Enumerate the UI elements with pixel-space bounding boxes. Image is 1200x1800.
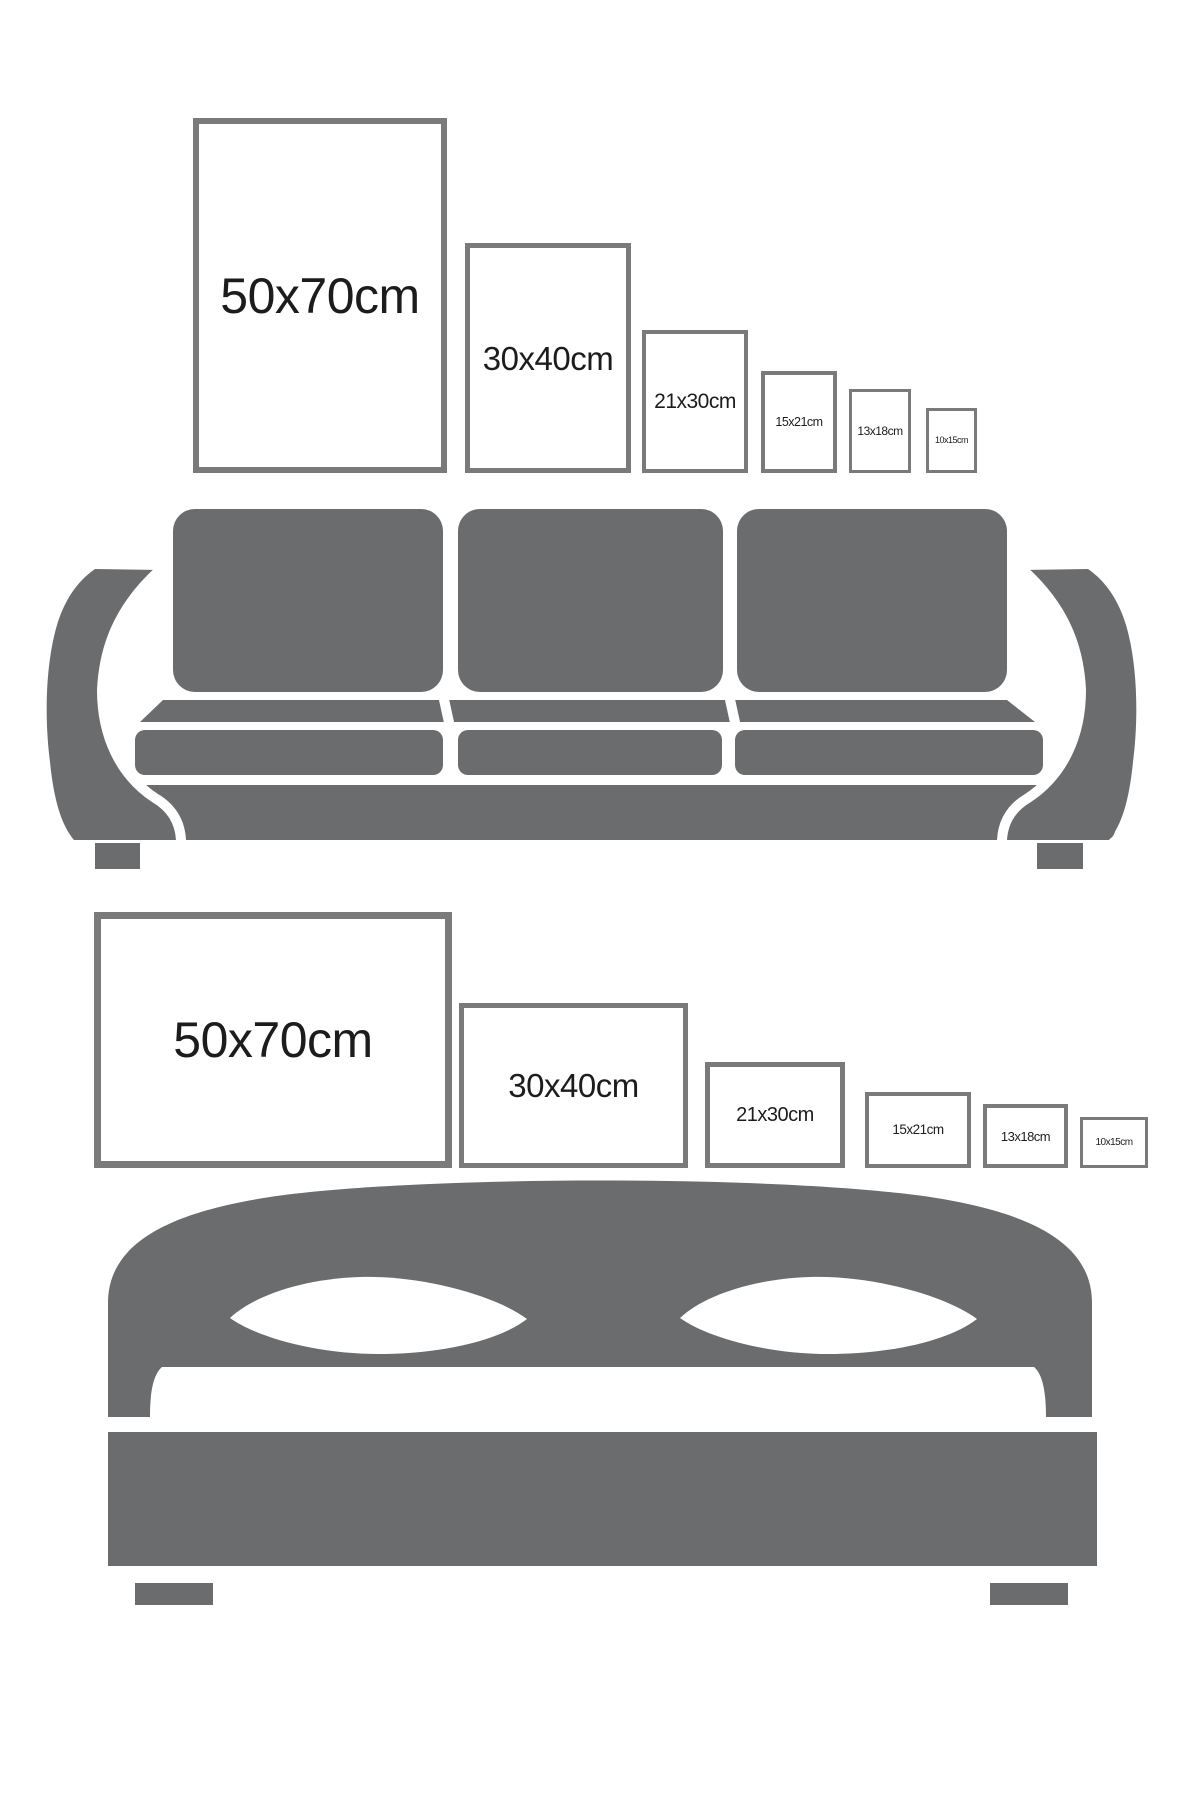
sofa-back-cushion-2 <box>458 509 723 692</box>
frame-size-label: 30x40cm <box>508 1069 638 1102</box>
sofa-seat-cushion-2 <box>458 730 722 775</box>
sofa-illustration <box>0 490 1200 880</box>
frame-portrait-10x15: 10x15cm <box>926 408 977 473</box>
sofa-seat-cushion-1 <box>135 730 443 775</box>
sofa-base <box>85 785 1115 840</box>
frame-size-label: 30x40cm <box>483 342 613 375</box>
frame-size-label: 15x21cm <box>775 416 822 429</box>
bed-foot-left <box>135 1583 213 1605</box>
sofa-foot-left <box>95 843 140 869</box>
frame-size-label: 21x30cm <box>654 391 736 412</box>
bed-illustration <box>0 1175 1200 1625</box>
sofa-seat-cushion-3 <box>735 730 1043 775</box>
frame-landscape-13x18: 13x18cm <box>983 1104 1068 1168</box>
frame-size-label: 10x15cm <box>1095 1138 1132 1148</box>
frame-size-label: 15x21cm <box>892 1123 943 1137</box>
frame-landscape-30x40: 30x40cm <box>459 1003 688 1168</box>
frame-size-label: 50x70cm <box>220 271 419 321</box>
size-guide-canvas: 50x70cm30x40cm21x30cm15x21cm13x18cm10x15… <box>0 0 1200 1800</box>
frame-size-label: 13x18cm <box>857 425 902 437</box>
frame-size-label: 10x15cm <box>935 436 968 445</box>
bed-base <box>108 1432 1097 1566</box>
bed-headboard <box>108 1181 1092 1418</box>
frame-landscape-50x70: 50x70cm <box>94 912 452 1168</box>
sofa-seat-deck <box>140 700 1035 722</box>
frame-portrait-50x70: 50x70cm <box>193 118 447 473</box>
sofa-back-cushion-1 <box>173 509 443 692</box>
frame-portrait-21x30: 21x30cm <box>642 330 748 473</box>
frame-portrait-13x18: 13x18cm <box>849 389 911 473</box>
bed-foot-right <box>990 1583 1068 1605</box>
frame-landscape-15x21: 15x21cm <box>865 1092 971 1168</box>
frame-landscape-21x30: 21x30cm <box>705 1062 845 1168</box>
frame-size-label: 21x30cm <box>736 1105 814 1125</box>
frame-portrait-30x40: 30x40cm <box>465 243 631 473</box>
sofa-back-cushion-3 <box>737 509 1007 692</box>
frame-portrait-15x21: 15x21cm <box>761 371 837 473</box>
sofa-arm-right <box>1002 569 1136 840</box>
sofa-foot-right <box>1037 843 1083 869</box>
frame-landscape-10x15: 10x15cm <box>1080 1117 1148 1168</box>
frame-size-label: 50x70cm <box>173 1015 372 1065</box>
frame-size-label: 13x18cm <box>1001 1130 1050 1143</box>
